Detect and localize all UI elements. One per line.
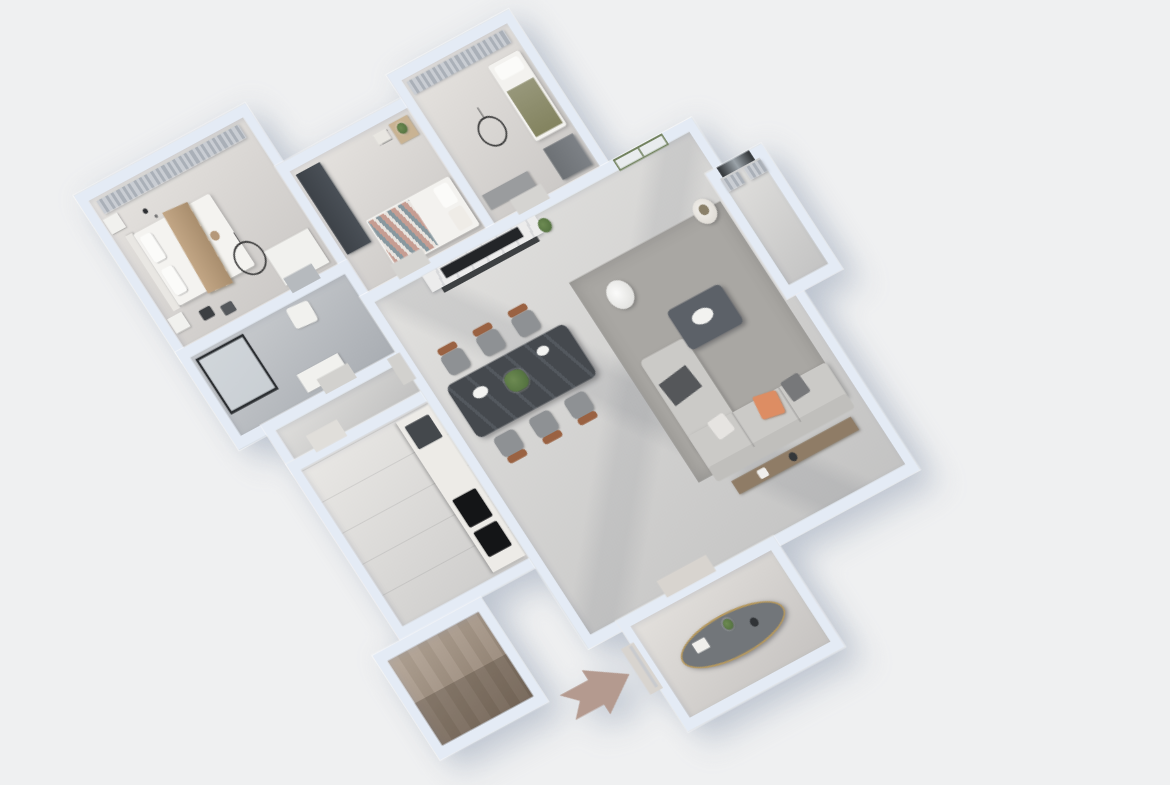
wardrobe-gray <box>543 133 593 180</box>
floor-cushion <box>198 305 216 321</box>
shower-enclosure <box>195 333 279 414</box>
floor-lamp <box>142 207 149 214</box>
nightstand <box>167 312 191 334</box>
apartment-plan <box>49 0 1021 785</box>
ring-pendant-light <box>471 111 513 152</box>
toilet <box>285 300 319 330</box>
balcony-shade <box>415 654 534 746</box>
entry-oval-console <box>670 588 797 682</box>
floor-cushion <box>220 300 238 316</box>
books <box>373 129 392 146</box>
nightstand <box>103 212 127 234</box>
curtains <box>96 124 246 214</box>
floorplan-scene <box>0 0 1170 785</box>
